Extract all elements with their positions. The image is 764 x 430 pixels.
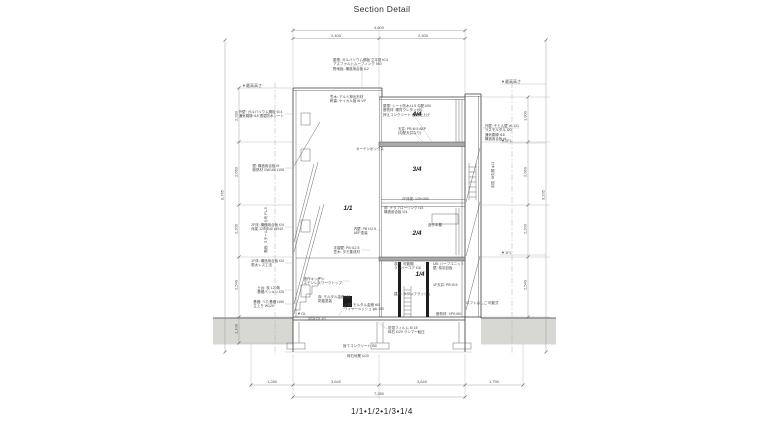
- dimension-label: 2,540: [234, 280, 239, 290]
- annotation-note: 収納: 可動棚 ランバーコア t18: [394, 262, 421, 271]
- dimension-label: 2,540: [523, 280, 528, 290]
- dimension-label: 9,165: [541, 190, 546, 200]
- dimension-label: ▼最高高さ: [501, 79, 521, 84]
- annotation-note: 土間: モルタル金鏝 t60 ワイヤーメッシュ φ6-150: [344, 303, 384, 312]
- annotation-note: 捨てコンクリート t50: [343, 344, 377, 348]
- annotation-note: 外壁: ガルバリウム鋼板 t0.4 通気胴縁 t18 透湿防水シート: [239, 110, 284, 119]
- dimension-label: 2,200: [523, 224, 528, 234]
- ground-hatch-right: [481, 319, 556, 345]
- dimension-label: 3,640: [331, 379, 341, 384]
- boundary-line: [275, 82, 512, 355]
- annotation-note: 断熱材: XPS t50: [436, 312, 461, 316]
- dimension-label: 2,400: [418, 33, 428, 38]
- room-label: 1/1: [343, 205, 352, 213]
- annotation-note: ロフトはしご 可動式: [466, 301, 498, 305]
- annotation-note: カーテンボックス: [356, 147, 384, 151]
- dimension-label: ▼最高高さ: [242, 83, 262, 88]
- annotation-note: 造作本棚: [428, 223, 442, 227]
- dimension-label: 2,660: [523, 167, 528, 177]
- annotation-note: 屋根: ガルバリウム鋼板 立平葺 t0.4 アスファルトルーフィング 940 野…: [333, 58, 388, 71]
- annotation-note: 基礎: べた基礎 t150 立上り W120: [253, 300, 284, 309]
- section-drawing-sheet: Section Detail: [0, 0, 764, 430]
- annotation-note: 建具: ラワンフラッシュ: [394, 292, 431, 296]
- annotation-note: 防湿フィルム t0.15 砕石 t120 ランマー転圧: [388, 326, 425, 335]
- room-label: 2/4: [412, 230, 421, 238]
- dimension-label: 2,200: [234, 224, 239, 234]
- dimension-label: 7,280: [374, 391, 384, 396]
- room-label: 1/4: [415, 271, 424, 279]
- annotation-note: 壁: 構造用合板 t9 断熱材 GW16K t105: [252, 164, 284, 173]
- annotation-note: 笠木: アルミ押出形材 軒裏: ケイカル板 t6 VP: [330, 95, 366, 104]
- annotation-note: 内壁: PB t12.5 AEP塗装: [354, 227, 376, 236]
- dimension-label: 1,900: [523, 111, 528, 121]
- annotation-note: 天井: PB t9.5 AEP (勾配天井なり): [398, 127, 426, 136]
- sheet-caption: 1/1•1/2•1/3•1/4: [0, 407, 764, 416]
- annotation-note: 階段: スチールささら桁 PL-9: [264, 207, 268, 252]
- annotation-note: 造作キッチン ステンレスワークトップ: [304, 277, 343, 286]
- dimension-label: 2,400: [331, 33, 341, 38]
- dimension-label: 1,100: [234, 324, 239, 334]
- dimension-label: 2,660: [234, 167, 239, 177]
- dimension-label: 4,800: [374, 25, 384, 30]
- annotation-note: 屋根: シート防水 t1.5 勾配1/50 断熱材: 硬質ウレタン t50 押え…: [383, 104, 431, 117]
- annotation-note: 1F床: 構造用合板 t24 根太レス工法: [251, 259, 284, 268]
- annotation-note: 手摺壁: PB t12.5 笠木: タモ集成材: [334, 246, 360, 255]
- slab-4f: [379, 142, 465, 147]
- annotation-note: 外壁: そとん壁 W-121 ラスモルタル t20 通気胴縁 t18 構造用合板…: [485, 124, 519, 142]
- dimension-label: 設計GL±0: [308, 316, 326, 321]
- annotation-note: 砕石地業 t120: [347, 354, 369, 358]
- annotation-note: 土台: 桧 120角 基礎パッキン t20: [257, 286, 284, 295]
- annotation-note: 手摺: St丸鋼 φ13: [491, 162, 495, 188]
- annotation-note: 床: ナラフローリング t15 構造用合板 t24: [384, 206, 423, 215]
- dimension-label: 8,765: [220, 190, 225, 200]
- annotation-note: UB: ハーフユニット 壁: 桧羽目板: [433, 262, 464, 271]
- dimension-label: 3,640: [417, 379, 427, 384]
- slab-2f: [379, 257, 465, 261]
- annotation-note: 2F床梁: 120×300: [402, 197, 429, 201]
- dimension-label: 1,280: [267, 379, 277, 384]
- dimension-label: ▼GL: [297, 311, 306, 316]
- annotation-note: 1F天井: PB t9.5: [433, 283, 458, 287]
- room-label: 4/4: [412, 111, 421, 119]
- dimension-label: ▼1FL: [501, 250, 512, 255]
- dimension-label: 1,790: [489, 379, 499, 384]
- wall-post: [426, 262, 429, 317]
- room-label: 3/4: [412, 166, 421, 174]
- window-sections: [301, 113, 310, 297]
